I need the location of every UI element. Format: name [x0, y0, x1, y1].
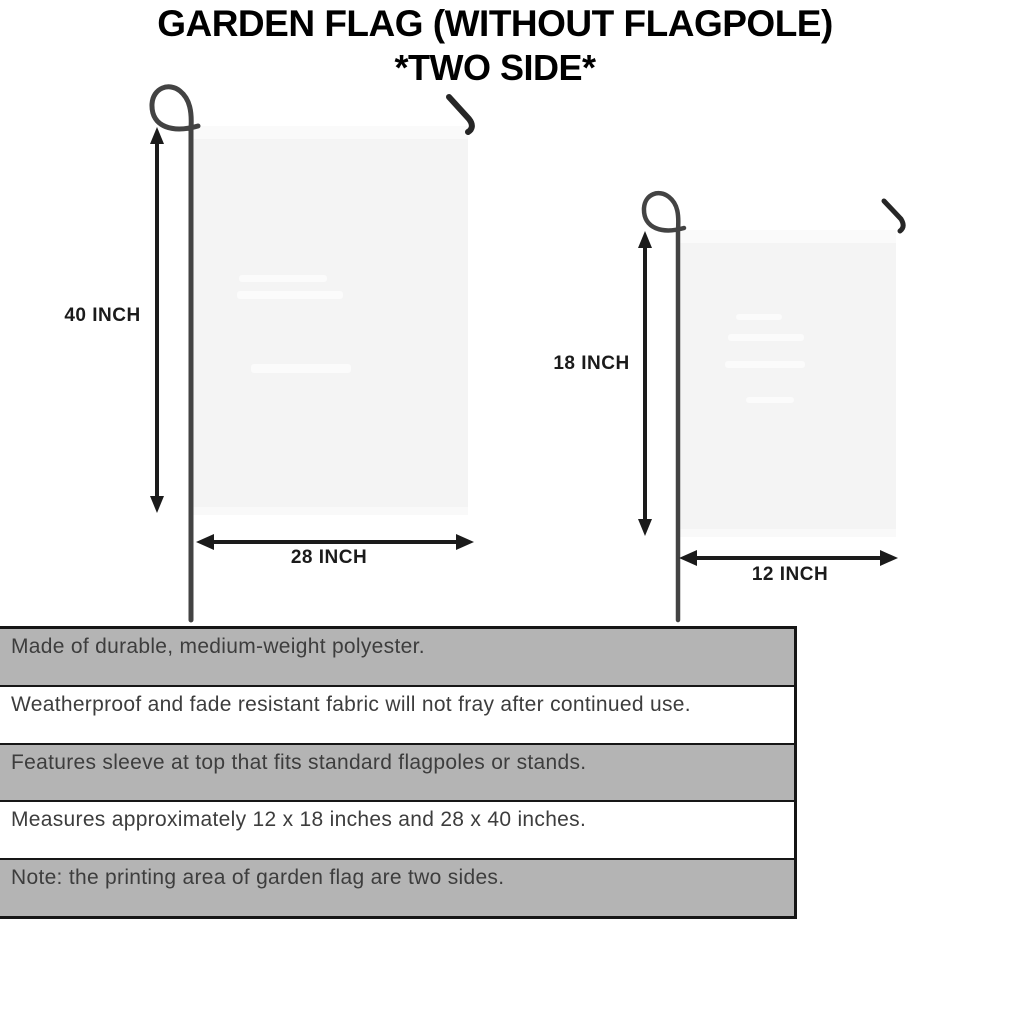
- feature-text: Weatherproof and fade resistant fabric w…: [0, 687, 794, 717]
- feature-list: Made of durable, medium-weight polyester…: [0, 626, 797, 919]
- width-label-small: 12 INCH: [726, 564, 854, 586]
- hook-small-icon: [884, 201, 903, 231]
- feature-text: Made of durable, medium-weight polyester…: [0, 629, 794, 659]
- feature-row: Note: the printing area of garden flag a…: [0, 858, 794, 916]
- hook-large-icon: [449, 97, 472, 132]
- product-size-chart: GARDEN FLAG (WITHOUT FLAGPOLE) *TWO SIDE…: [0, 0, 1024, 1024]
- feature-text: Note: the printing area of garden flag a…: [0, 860, 794, 890]
- feature-row: Features sleeve at top that fits standar…: [0, 743, 794, 801]
- feature-row: Weatherproof and fade resistant fabric w…: [0, 685, 794, 743]
- height-label-small: 18 INCH: [539, 353, 644, 375]
- height-label-large: 40 INCH: [50, 305, 155, 327]
- width-label-large: 28 INCH: [265, 547, 393, 569]
- height-arrow-small: [638, 231, 652, 536]
- feature-row: Made of durable, medium-weight polyester…: [0, 629, 794, 685]
- flagpole-small: [644, 193, 684, 620]
- feature-text: Features sleeve at top that fits standar…: [0, 745, 794, 775]
- feature-text: Measures approximately 12 x 18 inches an…: [0, 802, 794, 832]
- feature-row: Measures approximately 12 x 18 inches an…: [0, 800, 794, 858]
